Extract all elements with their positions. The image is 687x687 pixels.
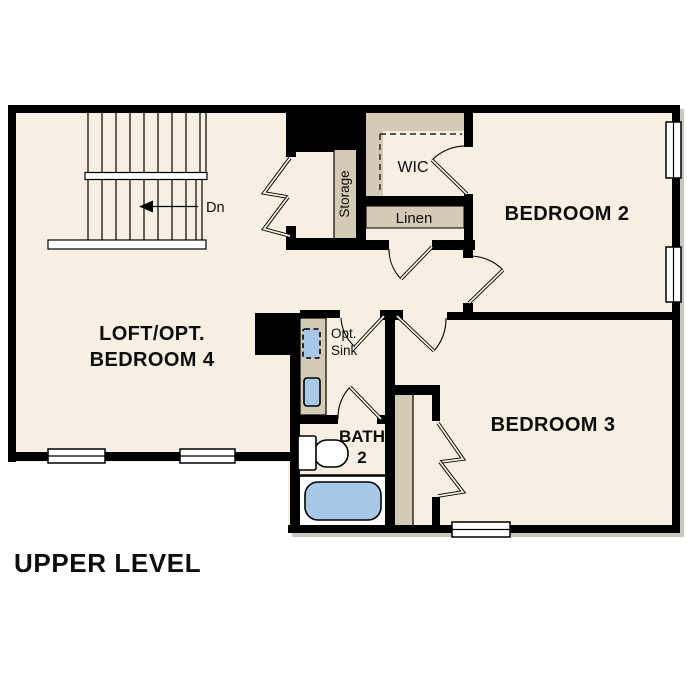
stair-bottom-rail — [48, 240, 206, 249]
stair-landing-rail — [85, 173, 207, 180]
bath2-label-line2: 2 — [357, 448, 366, 467]
stair-direction-label: Dn — [206, 200, 225, 216]
floor-plan-page: Dn Storage WIC Linen LOFT — [0, 0, 687, 687]
floor-plan: Dn Storage WIC Linen LOFT — [0, 0, 687, 687]
storage-label: Storage — [337, 170, 352, 217]
vanity-sink — [304, 378, 320, 406]
optional-sink — [303, 329, 320, 358]
plan-title: UPPER LEVEL — [14, 548, 201, 578]
bathtub-icon — [305, 482, 381, 520]
loft-label-line1: LOFT/OPT. — [99, 323, 205, 345]
bedroom3-closet-shelf — [395, 395, 413, 525]
linen-closet: Linen — [366, 206, 464, 228]
bath2-label-line1: BATH — [339, 427, 385, 446]
linen-label: Linen — [396, 210, 433, 227]
loft-label-line2: BEDROOM 4 — [90, 349, 215, 371]
bedroom2-label: BEDROOM 2 — [505, 203, 630, 225]
bedroom3-label: BEDROOM 3 — [491, 414, 616, 436]
wic-label: WIC — [397, 159, 428, 176]
optional-sink-label-line1: Opt. — [331, 326, 357, 341]
toilet-icon — [298, 436, 348, 470]
